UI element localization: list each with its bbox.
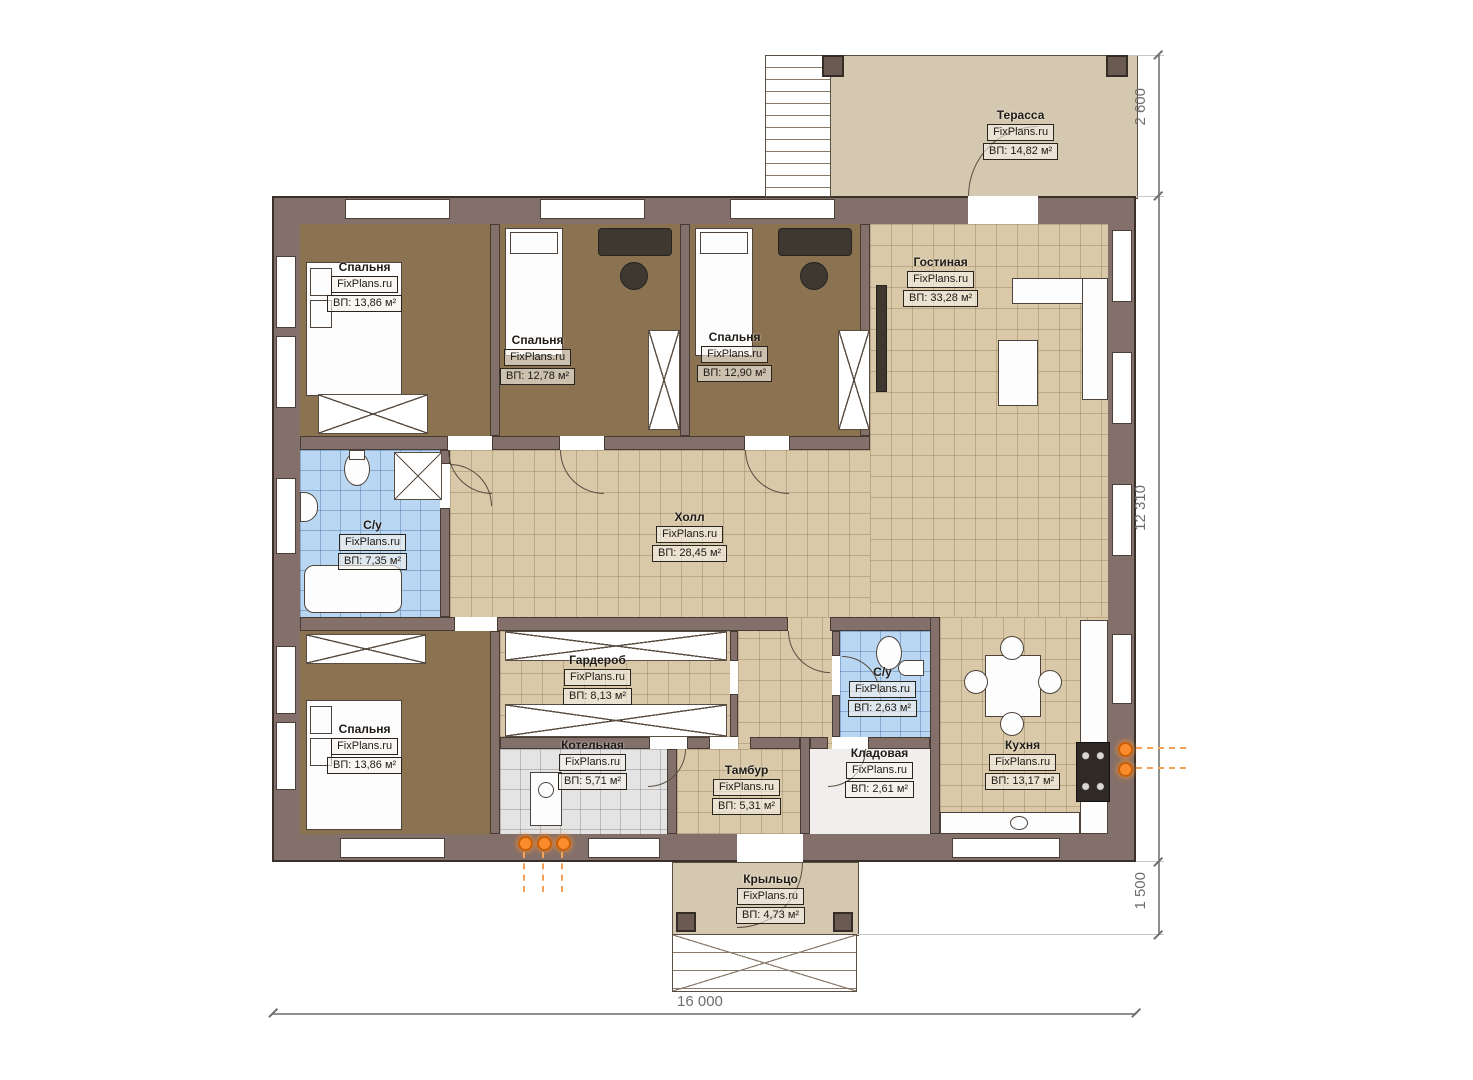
watermark: FixPlans.ru: [713, 779, 780, 796]
extension-line: [1136, 196, 1164, 197]
watermark: FixPlans.ru: [331, 276, 398, 293]
room-name: Спальня: [709, 330, 761, 344]
bathtub: [304, 565, 402, 613]
dimension-building-width: 16 000: [677, 993, 723, 1010]
window: [340, 838, 445, 858]
utility-connection-icon: [518, 836, 533, 851]
chair: [1038, 670, 1062, 694]
watermark: FixPlans.ru: [504, 349, 571, 366]
pillow: [510, 232, 558, 254]
watermark: FixPlans.ru: [907, 271, 974, 288]
wall-segment: [490, 631, 500, 834]
room-label-bathroom-main: С/у FixPlans.ru ВП: 7,35 м²: [338, 518, 407, 570]
watermark: FixPlans.ru: [987, 124, 1054, 141]
room-name: Тамбур: [725, 763, 769, 777]
room-area: ВП: 2,63 м²: [848, 700, 917, 717]
room-name: С/у: [873, 665, 892, 679]
room-area: ВП: 13,86 м²: [327, 757, 402, 774]
wall-segment: [497, 617, 788, 631]
room-label-living-room: Гостиная FixPlans.ru ВП: 33,28 м²: [903, 255, 978, 307]
desk: [778, 228, 852, 256]
room-label-bedroom-top-right: Спальня FixPlans.ru ВП: 12,90 м²: [697, 330, 772, 382]
window: [1112, 634, 1132, 704]
terrace-column: [1106, 55, 1128, 77]
room-area: ВП: 33,28 м²: [903, 290, 978, 307]
dimension-line-horizontal: [272, 1013, 1136, 1015]
room-name: Кладовая: [851, 746, 908, 760]
wall-segment: [800, 737, 810, 834]
watermark: FixPlans.ru: [559, 754, 626, 771]
room-label-storage: Кладовая FixPlans.ru ВП: 2,61 м²: [845, 746, 914, 798]
watermark: FixPlans.ru: [846, 762, 913, 779]
room-area: ВП: 4,73 м²: [736, 907, 805, 924]
wall-segment: [730, 631, 738, 661]
wardrobe-shelving: [505, 704, 727, 737]
room-name: Кухня: [1005, 738, 1040, 752]
watermark: FixPlans.ru: [989, 754, 1056, 771]
room-area: ВП: 2,61 м²: [845, 781, 914, 798]
shower: [394, 452, 442, 500]
wall-segment: [492, 436, 560, 450]
sofa: [1082, 278, 1108, 400]
wall-segment: [680, 224, 690, 436]
utility-connection-icon: [537, 836, 552, 851]
room-name: Котельная: [561, 738, 624, 752]
window: [276, 722, 296, 790]
window: [276, 336, 296, 408]
utility-connection-icon: [1118, 742, 1133, 757]
utility-line: [1136, 767, 1186, 769]
room-label-hall: Холл FixPlans.ru ВП: 28,45 м²: [652, 510, 727, 562]
utility-line: [1136, 747, 1186, 749]
window: [1112, 230, 1132, 302]
utility-line: [523, 852, 525, 892]
tv: [876, 285, 887, 392]
extension-line: [857, 934, 1164, 935]
wall-segment: [750, 737, 800, 749]
window: [730, 199, 835, 219]
wall-segment: [832, 631, 840, 656]
entrance-door-opening: [737, 834, 803, 862]
window: [345, 199, 450, 219]
wall-segment: [830, 617, 940, 631]
room-name: Спальня: [339, 260, 391, 274]
window: [952, 838, 1060, 858]
room-name: Терасса: [997, 108, 1045, 122]
room-label-wardrobe: Гардероб FixPlans.ru ВП: 8,13 м²: [563, 653, 632, 705]
closet: [318, 394, 428, 434]
chair: [1000, 712, 1024, 736]
dimension-line-vertical: [1158, 55, 1160, 935]
dimension-porch-depth: 1 500: [1132, 872, 1149, 910]
wall-segment: [789, 436, 870, 450]
desk: [598, 228, 672, 256]
utility-connection-icon: [556, 836, 571, 851]
room-label-boiler-room: Котельная FixPlans.ru ВП: 5,71 м²: [558, 738, 627, 790]
floor-plan: Терасса FixPlans.ru ВП: 14,82 м² Спальня…: [0, 0, 1473, 1080]
closet: [306, 634, 426, 664]
toilet-tank: [349, 450, 365, 460]
window: [588, 838, 660, 858]
wall-segment: [300, 617, 455, 631]
wall-segment: [300, 436, 448, 450]
room-label-bathroom-small: С/у FixPlans.ru ВП: 2,63 м²: [848, 665, 917, 717]
pillow: [700, 232, 748, 254]
room-area: ВП: 14,82 м²: [983, 143, 1058, 160]
room-area: ВП: 12,90 м²: [697, 365, 772, 382]
window: [1112, 484, 1132, 556]
watermark: FixPlans.ru: [339, 534, 406, 551]
room-name: Спальня: [339, 722, 391, 736]
porch-column: [833, 912, 853, 932]
chair: [1000, 636, 1024, 660]
room-name: Гостиная: [913, 255, 967, 269]
room-name: С/у: [363, 518, 382, 532]
room-name: Крыльцо: [743, 872, 798, 886]
kitchen-table: [985, 655, 1041, 717]
room-name: Холл: [675, 510, 705, 524]
wall-segment: [930, 617, 940, 834]
utility-line: [561, 852, 563, 892]
watermark: FixPlans.ru: [701, 346, 768, 363]
coffee-table: [998, 340, 1038, 406]
chair: [800, 262, 828, 290]
room-label-bedroom-bottom: Спальня FixPlans.ru ВП: 13,86 м²: [327, 722, 402, 774]
dimension-terrace-depth: 2 600: [1132, 88, 1149, 126]
wall-segment: [730, 694, 738, 737]
wall-segment: [832, 695, 840, 737]
terrace-column: [822, 55, 844, 77]
wall-segment: [440, 508, 450, 617]
room-area: ВП: 8,13 м²: [563, 688, 632, 705]
wall-segment: [604, 436, 745, 450]
porch-steps: [672, 934, 857, 992]
room-label-vestibule: Тамбур FixPlans.ru ВП: 5,31 м²: [712, 763, 781, 815]
window: [276, 646, 296, 714]
closet: [838, 330, 870, 430]
utility-line: [542, 852, 544, 892]
chair: [620, 262, 648, 290]
extension-line: [1136, 861, 1164, 862]
wall-segment: [810, 737, 828, 749]
room-label-terrace: Терасса FixPlans.ru ВП: 14,82 м²: [983, 108, 1058, 160]
room-label-bedroom-top-mid: Спальня FixPlans.ru ВП: 12,78 м²: [500, 333, 575, 385]
watermark: FixPlans.ru: [656, 526, 723, 543]
watermark: FixPlans.ru: [849, 681, 916, 698]
window: [276, 256, 296, 328]
room-area: ВП: 5,31 м²: [712, 798, 781, 815]
boiler-dial: [538, 782, 554, 798]
wall-segment: [490, 224, 500, 436]
wall-segment: [687, 737, 710, 749]
chair: [964, 670, 988, 694]
room-area: ВП: 7,35 м²: [338, 553, 407, 570]
closet: [648, 330, 680, 430]
room-area: ВП: 28,45 м²: [652, 545, 727, 562]
room-label-kitchen: Кухня FixPlans.ru ВП: 13,17 м²: [985, 738, 1060, 790]
room-name: Гардероб: [569, 653, 626, 667]
room-area: ВП: 12,78 м²: [500, 368, 575, 385]
terrace-door-opening: [968, 196, 1038, 224]
window: [1112, 352, 1132, 424]
room-area: ВП: 13,17 м²: [985, 773, 1060, 790]
watermark: FixPlans.ru: [564, 669, 631, 686]
porch-column: [676, 912, 696, 932]
watermark: FixPlans.ru: [737, 888, 804, 905]
room-area: ВП: 13,86 м²: [327, 295, 402, 312]
room-name: Спальня: [512, 333, 564, 347]
window: [540, 199, 645, 219]
room-label-bedroom-top-left: Спальня FixPlans.ru ВП: 13,86 м²: [327, 260, 402, 312]
room-area: ВП: 5,71 м²: [558, 773, 627, 790]
room-label-porch: Крыльцо FixPlans.ru ВП: 4,73 м²: [736, 872, 805, 924]
stove: [1076, 742, 1110, 802]
watermark: FixPlans.ru: [331, 738, 398, 755]
dimension-building-height: 12 310: [1132, 485, 1149, 531]
utility-connection-icon: [1118, 762, 1133, 777]
kitchen-sink: [1010, 816, 1028, 830]
window: [276, 478, 296, 554]
